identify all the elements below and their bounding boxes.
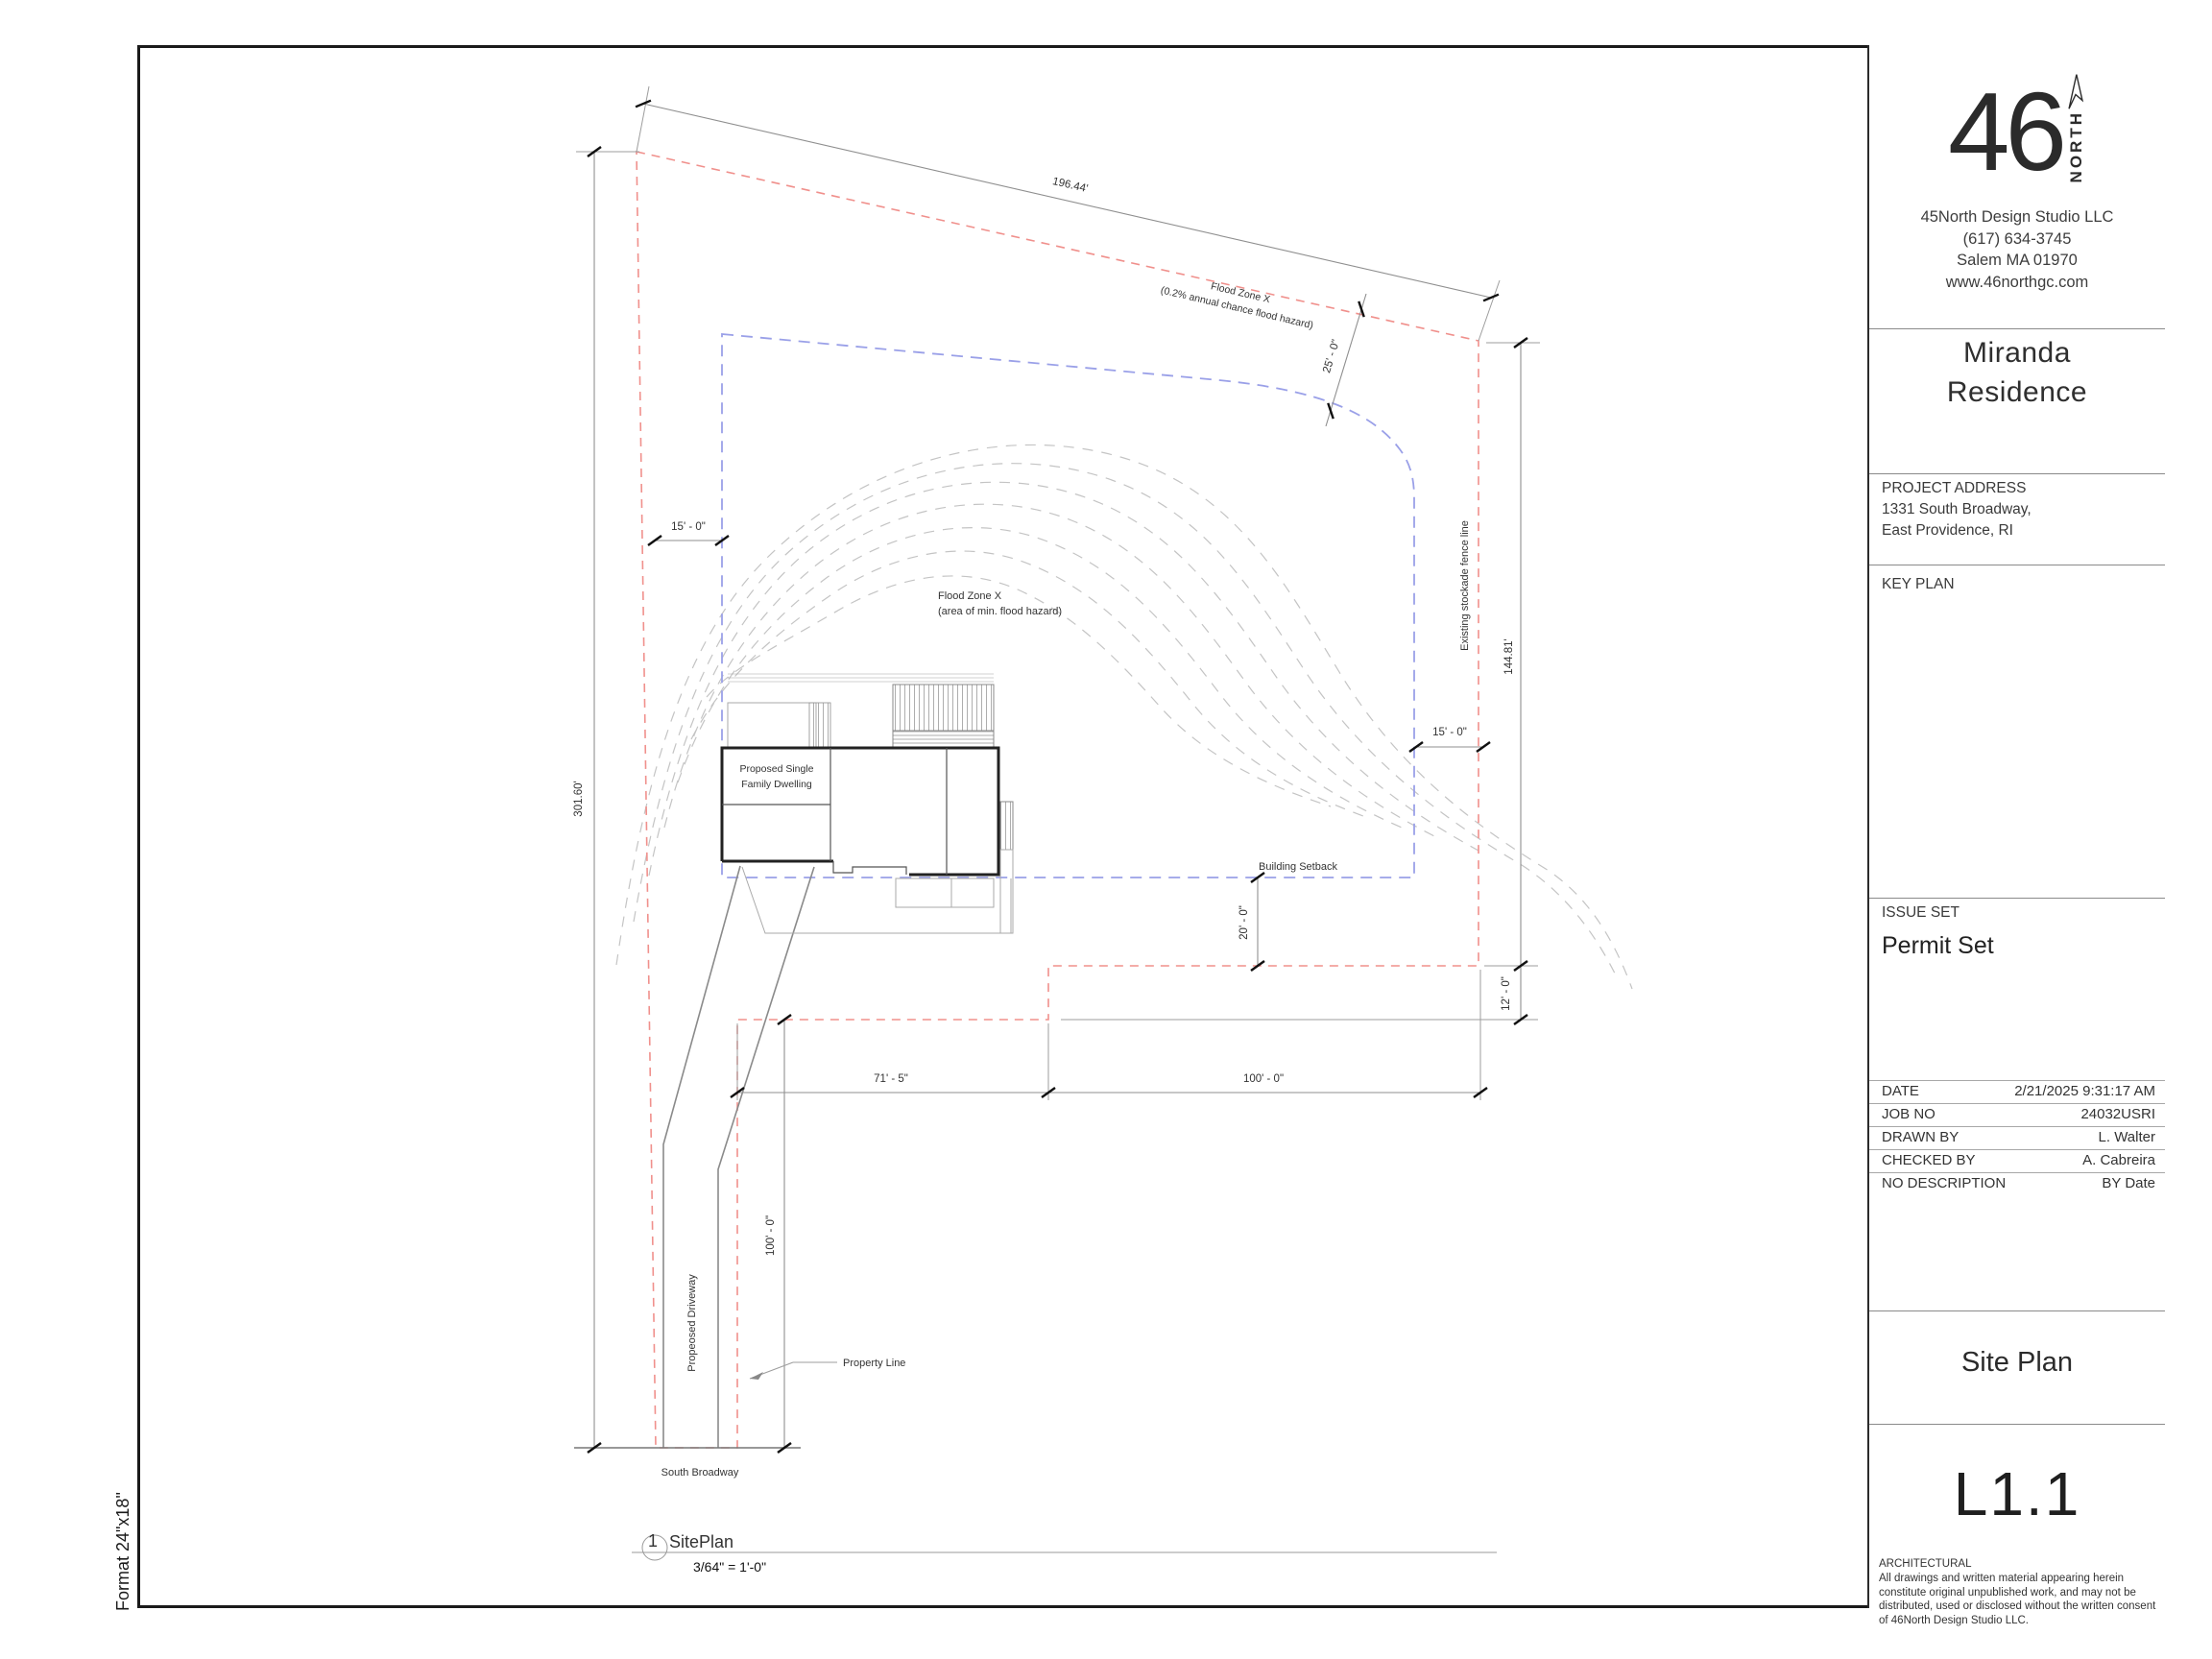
info-row-drawnby: DRAWN BY L. Walter: [1869, 1126, 2165, 1149]
north-arrow-icon: [2065, 72, 2086, 110]
info-value: L. Walter: [2099, 1126, 2155, 1149]
project-name-line1: Miranda: [1869, 333, 2165, 373]
logo-north-text: NORTH: [2068, 110, 2084, 182]
sheet-name: Site Plan: [1869, 1347, 2165, 1379]
divider: [1869, 328, 2165, 329]
info-row-checkedby: CHECKED BY A. Cabreira: [1869, 1149, 2165, 1172]
firm-name: 45North Design Studio LLC: [1869, 206, 2165, 228]
firm-website: www.46northgc.com: [1869, 272, 2165, 294]
info-value: 2/21/2025 9:31:17 AM: [2014, 1080, 2155, 1103]
project-address-line2: East Providence, RI: [1882, 520, 2157, 541]
info-label: NO DESCRIPTION: [1882, 1172, 2006, 1195]
divider: [1869, 473, 2165, 474]
info-label: DATE: [1882, 1080, 1919, 1103]
project-name-line2: Residence: [1869, 373, 2165, 412]
info-row-jobno: JOB NO 24032USRI: [1869, 1103, 2165, 1126]
info-label: JOB NO: [1882, 1103, 1935, 1126]
divider: [1869, 898, 2165, 899]
issue-set-value: Permit Set: [1882, 932, 1994, 960]
info-value: A. Cabreira: [2082, 1149, 2155, 1172]
divider: [1869, 565, 2165, 565]
logo-number: 46: [1948, 81, 2062, 183]
info-row-description: NO DESCRIPTION BY Date: [1869, 1172, 2165, 1195]
sheet-border: [137, 45, 2165, 1608]
key-plan-label: KEY PLAN: [1882, 574, 2157, 595]
discipline-label: ARCHITECTURAL: [1879, 1558, 2159, 1570]
sheet-number: L1.1: [1869, 1458, 2165, 1529]
project-address-line1: 1331 South Broadway,: [1882, 499, 2157, 520]
firm-info: 45North Design Studio LLC (617) 634-3745…: [1869, 206, 2165, 293]
firm-logo: 46 NORTH: [1869, 72, 2165, 182]
divider: [1869, 1310, 2165, 1311]
sheet-format-label: Format 24"x18": [113, 1492, 133, 1611]
issue-set-label: ISSUE SET: [1882, 902, 2157, 924]
info-value: BY Date: [2102, 1172, 2155, 1195]
divider: [1869, 1424, 2165, 1425]
info-label: CHECKED BY: [1882, 1149, 1976, 1172]
project-address: PROJECT ADDRESS 1331 South Broadway, Eas…: [1882, 478, 2157, 541]
info-value: 24032USRI: [2080, 1103, 2155, 1126]
copyright-disclaimer: All drawings and written material appear…: [1879, 1572, 2160, 1627]
project-name: Miranda Residence: [1869, 333, 2165, 412]
title-block: 46 NORTH 45North Design Studio LLC (617)…: [1867, 45, 2165, 1608]
info-label: DRAWN BY: [1882, 1126, 1959, 1149]
firm-city: Salem MA 01970: [1869, 250, 2165, 272]
firm-phone: (617) 634-3745: [1869, 228, 2165, 251]
drawing-sheet: Proposed Single Family Dwelling: [0, 0, 2212, 1659]
info-row-date: DATE 2/21/2025 9:31:17 AM: [1869, 1080, 2165, 1103]
project-address-label: PROJECT ADDRESS: [1882, 478, 2157, 499]
